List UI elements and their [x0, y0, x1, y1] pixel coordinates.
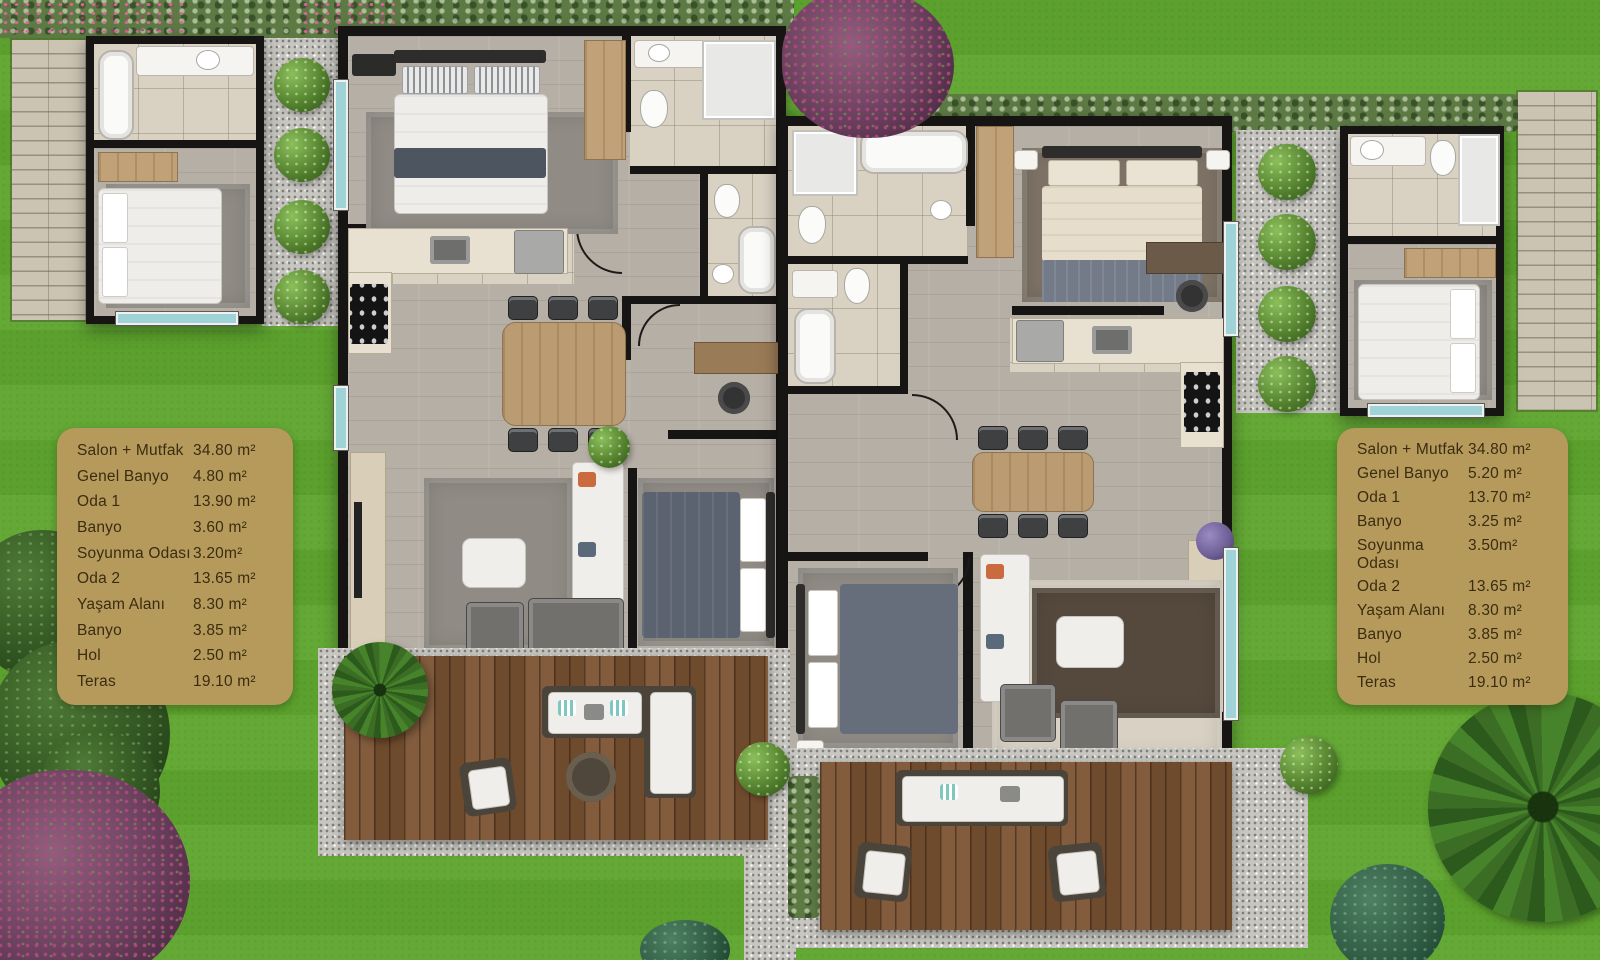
legend-room-area: 13.90 m²	[193, 493, 285, 511]
legend-room-label: Banyo	[77, 519, 193, 537]
gray-pillow	[1000, 786, 1020, 802]
legend-room-label: Banyo	[77, 622, 193, 640]
wardrobe	[98, 152, 178, 182]
dining-chair	[1018, 514, 1048, 538]
striped-pillow	[610, 700, 628, 716]
bed-pillow	[474, 66, 540, 94]
paved-path-right	[1518, 92, 1596, 410]
legend-row: Teras19.10 m²	[77, 673, 285, 691]
bathtub	[738, 226, 776, 294]
legend-room-label: Oda 1	[77, 493, 193, 511]
dining-chair	[1058, 514, 1088, 538]
legend-room-label: Genel Banyo	[1357, 465, 1468, 483]
bed-pillow	[1048, 160, 1120, 186]
legend-room-area: 13.70 m²	[1468, 489, 1560, 507]
bed-pillow	[1450, 289, 1476, 339]
bathtub	[98, 50, 134, 140]
legend-room-area: 34.80 m²	[1468, 441, 1560, 459]
legend-row: Salon + Mutfak34.80 m²	[1357, 441, 1560, 459]
bed	[840, 584, 958, 734]
legend-row: Genel Banyo5.20 m²	[1357, 465, 1560, 483]
striped-pillow	[940, 784, 958, 800]
refrigerator	[514, 230, 564, 274]
legend-row: Banyo3.85 m²	[77, 622, 285, 640]
potted-plant	[588, 426, 630, 468]
kitchen-sink	[430, 236, 470, 264]
outdoor-armchair-cushion	[467, 766, 510, 811]
sofa-pillow	[986, 634, 1004, 649]
paved-path-left	[12, 40, 86, 320]
dining-chair	[978, 426, 1008, 450]
wall-segment	[1348, 236, 1496, 244]
legend-room-label: Soyunma Odası	[77, 545, 193, 563]
legend-row: Salon + Mutfak34.80 m²	[77, 442, 285, 460]
coffee-table	[462, 538, 526, 588]
desk	[694, 342, 780, 374]
bed-headboard	[1042, 146, 1202, 158]
round-bush	[1258, 144, 1316, 200]
legend-room-label: Oda 2	[77, 570, 193, 588]
dining-chair	[1018, 426, 1048, 450]
bed-pillow	[102, 247, 128, 297]
palm-plant	[332, 642, 428, 738]
window	[334, 80, 348, 210]
legend-row: Banyo3.25 m²	[1357, 513, 1560, 531]
shower	[792, 130, 858, 196]
window	[1224, 548, 1238, 720]
wall-segment	[630, 166, 776, 174]
round-bush	[1258, 214, 1316, 270]
armchair	[1060, 700, 1118, 754]
bed-pillow	[808, 662, 838, 728]
teal-shrub	[1330, 864, 1445, 960]
dining-table	[972, 452, 1094, 512]
legend-room-area: 13.65 m²	[1468, 578, 1560, 596]
bed-pillow	[1450, 343, 1476, 393]
outdoor-sofa-cushions	[650, 692, 692, 794]
legend-room-area: 3.85 m²	[1468, 626, 1560, 644]
legend-room-label: Hol	[1357, 650, 1468, 668]
legend-room-area: 19.10 m²	[193, 673, 285, 691]
bed-headboard	[796, 584, 805, 734]
bed-headboard	[766, 492, 775, 638]
legend-room-area: 34.80 m²	[193, 442, 285, 460]
legend-row: Oda 213.65 m²	[77, 570, 285, 588]
round-bush	[274, 58, 330, 112]
toilet	[640, 90, 668, 128]
bathroom-vanity	[792, 270, 838, 298]
office-chair	[1176, 280, 1208, 312]
window	[1224, 222, 1238, 336]
coffee-table	[1056, 616, 1124, 668]
deck-fern	[1280, 736, 1338, 794]
legend-room-label: Banyo	[1357, 513, 1468, 531]
tv	[354, 502, 362, 598]
legend-room-label: Teras	[77, 673, 193, 691]
purple-flowering-tree	[782, 0, 954, 138]
window	[1368, 404, 1484, 417]
bed-pillow	[402, 66, 468, 94]
window	[334, 386, 348, 450]
bed	[642, 492, 740, 638]
teal-shrub	[640, 920, 730, 960]
gray-pillow	[584, 704, 604, 720]
outdoor-sofa-cushions	[902, 776, 1064, 822]
sink-basin	[1360, 140, 1384, 160]
nightstand	[1014, 150, 1038, 170]
round-bush	[274, 270, 330, 324]
bed-throw-blanket	[394, 148, 546, 178]
legend-room-area: 3.50m²	[1468, 537, 1560, 555]
cooktop	[1184, 372, 1220, 432]
legend-row: Soyunma Odası3.20m²	[77, 545, 285, 563]
office-chair	[718, 382, 750, 414]
legend-row: Hol2.50 m²	[1357, 650, 1560, 668]
legend-room-label: Soyunma Odası	[1357, 537, 1468, 573]
dining-chair	[588, 296, 618, 320]
sink-basin	[648, 44, 670, 62]
toilet	[798, 206, 826, 244]
bathtub	[794, 308, 836, 384]
legend-row: Oda 113.90 m²	[77, 493, 285, 511]
legend-room-label: Banyo	[1357, 626, 1468, 644]
wall-segment	[788, 256, 968, 264]
dining-chair	[508, 428, 538, 452]
palm-tree	[1428, 692, 1600, 922]
sofa-pillow	[986, 564, 1004, 579]
legend-room-area: 3.25 m²	[1468, 513, 1560, 531]
legend-room-label: Teras	[1357, 674, 1468, 692]
nightstand	[1206, 150, 1230, 170]
legend-room-area: 3.85 m²	[193, 622, 285, 640]
legend-room-area: 8.30 m²	[1468, 602, 1560, 620]
legend-room-label: Oda 2	[1357, 578, 1468, 596]
dining-chair	[548, 428, 578, 452]
legend-room-area: 3.20m²	[193, 545, 285, 563]
shower	[702, 40, 776, 120]
wardrobe	[1404, 248, 1496, 278]
legend-row: Yaşam Alanı8.30 m²	[77, 596, 285, 614]
legend-room-area: 2.50 m²	[193, 647, 285, 665]
dining-chair	[548, 296, 578, 320]
wall-segment	[94, 140, 256, 148]
shower	[1458, 134, 1500, 226]
wardrobe	[976, 126, 1014, 258]
desk	[1146, 242, 1224, 274]
bed-pillow	[740, 568, 766, 632]
legend-room-area: 3.60 m²	[193, 519, 285, 537]
legend-room-label: Yaşam Alanı	[77, 596, 193, 614]
legend-left: Salon + Mutfak34.80 m² Genel Banyo4.80 m…	[57, 428, 293, 705]
legend-room-label: Genel Banyo	[77, 468, 193, 486]
armchair	[1000, 684, 1056, 742]
wall-segment	[788, 552, 928, 561]
bed-pillow	[102, 193, 128, 243]
legend-room-area: 13.65 m²	[193, 570, 285, 588]
legend-row: Oda 213.65 m²	[1357, 578, 1560, 596]
legend-room-label: Hol	[77, 647, 193, 665]
legend-row: Genel Banyo4.80 m²	[77, 468, 285, 486]
dining-chair	[978, 514, 1008, 538]
wall-segment	[700, 174, 708, 300]
outdoor-round-table	[566, 752, 616, 802]
toilet	[1430, 140, 1456, 176]
legend-row: Banyo3.60 m²	[77, 519, 285, 537]
bed-headboard	[394, 50, 546, 63]
legend-room-label: Yaşam Alanı	[1357, 602, 1468, 620]
wall-segment	[668, 430, 778, 439]
hedge-vertical	[788, 776, 820, 918]
kitchen-sink	[1092, 326, 1132, 354]
legend-room-label: Salon + Mutfak	[77, 442, 193, 460]
toilet	[714, 184, 740, 218]
bathroom-vanity	[136, 46, 254, 76]
legend-room-area: 2.50 m²	[1468, 650, 1560, 668]
wardrobe	[584, 40, 626, 160]
floor-plan-scene: Salon + Mutfak34.80 m² Genel Banyo4.80 m…	[0, 0, 1600, 960]
bed-pillow	[808, 590, 838, 656]
cooktop	[350, 284, 388, 344]
legend-room-area: 5.20 m²	[1468, 465, 1560, 483]
legend-row: Oda 113.70 m²	[1357, 489, 1560, 507]
round-bush	[1258, 286, 1316, 342]
sink-basin	[196, 50, 220, 70]
wall-segment	[788, 386, 900, 394]
purple-bush	[0, 770, 190, 960]
legend-room-area: 4.80 m²	[193, 468, 285, 486]
refrigerator	[1016, 320, 1064, 362]
round-bush	[1258, 356, 1316, 412]
round-bush	[274, 128, 330, 182]
legend-row: Yaşam Alanı8.30 m²	[1357, 602, 1560, 620]
outdoor-armchair-cushion	[1056, 850, 1100, 896]
legend-right: Salon + Mutfak34.80 m² Genel Banyo5.20 m…	[1337, 428, 1568, 705]
sink-basin	[930, 200, 952, 220]
window	[116, 312, 238, 325]
toilet	[844, 268, 870, 304]
sink-basin	[712, 264, 734, 284]
legend-row: Banyo3.85 m²	[1357, 626, 1560, 644]
dining-chair	[508, 296, 538, 320]
legend-row: Soyunma Odası3.50m²	[1357, 537, 1560, 573]
dining-table	[502, 322, 626, 426]
legend-room-label: Salon + Mutfak	[1357, 441, 1468, 459]
legend-room-area: 19.10 m²	[1468, 674, 1560, 692]
sofa-pillow	[578, 542, 596, 557]
legend-row: Hol2.50 m²	[77, 647, 285, 665]
legend-room-area: 8.30 m²	[193, 596, 285, 614]
legend-room-label: Oda 1	[1357, 489, 1468, 507]
sofa-pillow	[578, 472, 596, 487]
legend-row: Teras19.10 m²	[1357, 674, 1560, 692]
dining-chair	[1058, 426, 1088, 450]
bed-pillow	[1126, 160, 1198, 186]
wall-segment	[630, 296, 776, 304]
round-bush	[274, 200, 330, 254]
hedge-flowers-patch	[0, 0, 185, 36]
wall-segment	[900, 264, 908, 394]
wall-segment	[963, 552, 973, 772]
wall-segment	[1012, 306, 1164, 315]
deck-plant	[736, 742, 790, 796]
dresser	[352, 54, 396, 76]
bed-pillow	[740, 498, 766, 562]
outdoor-armchair-cushion	[862, 850, 906, 896]
striped-pillow	[558, 700, 576, 716]
